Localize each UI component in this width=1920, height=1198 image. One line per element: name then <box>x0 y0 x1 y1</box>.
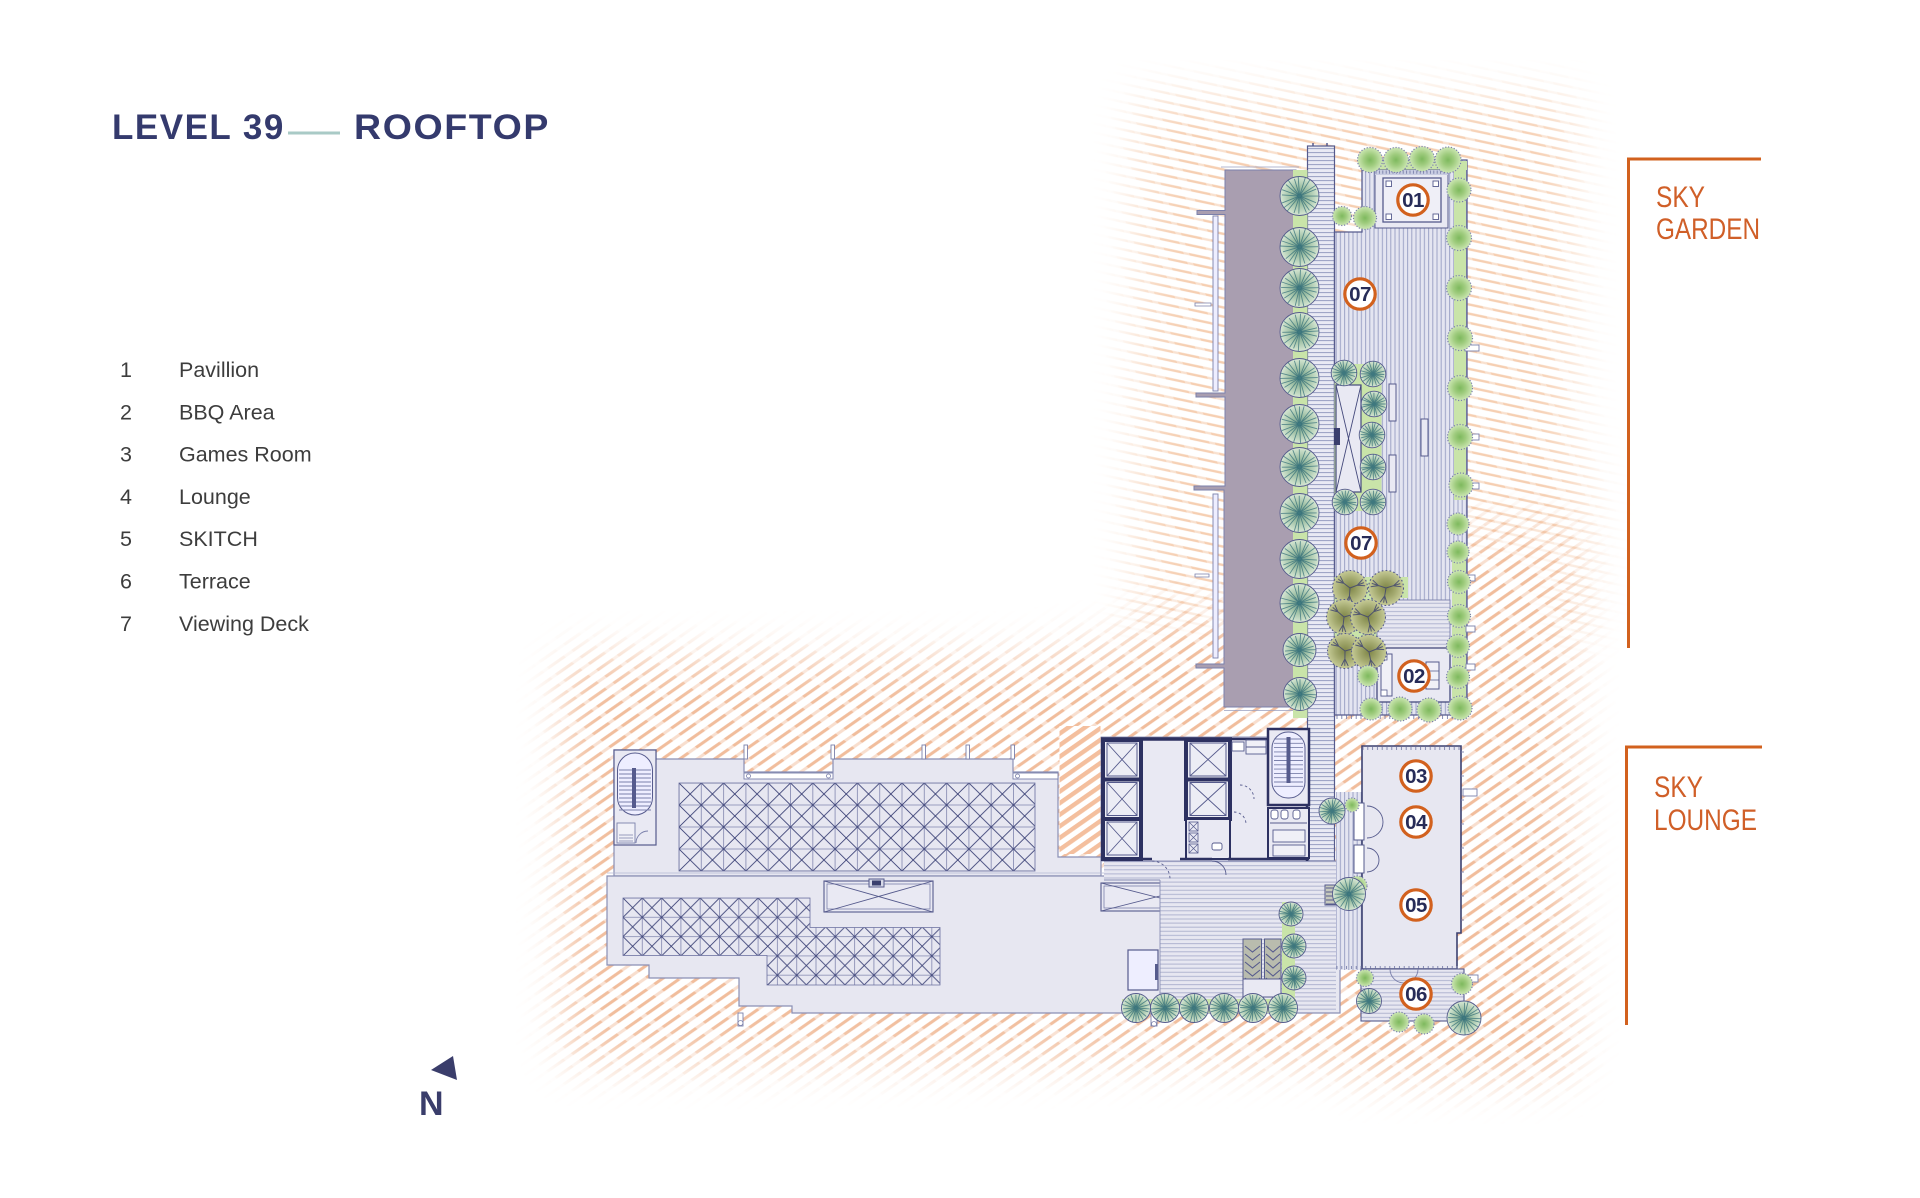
svg-text:Games Room: Games Room <box>179 443 312 467</box>
svg-text:03: 03 <box>1405 765 1427 788</box>
svg-text:07: 07 <box>1349 283 1371 306</box>
svg-text:Terrace: Terrace <box>179 570 251 594</box>
svg-text:Lounge: Lounge <box>179 485 251 509</box>
svg-text:5: 5 <box>120 527 132 551</box>
svg-text:N: N <box>419 1085 444 1123</box>
svg-text:BBQ Area: BBQ Area <box>179 400 275 424</box>
svg-text:ROOFTOP: ROOFTOP <box>354 108 550 147</box>
svg-text:04: 04 <box>1405 811 1428 834</box>
svg-text:02: 02 <box>1403 665 1425 688</box>
svg-text:3: 3 <box>120 443 132 467</box>
svg-text:07: 07 <box>1350 532 1372 555</box>
svg-text:7: 7 <box>120 612 132 636</box>
svg-text:Pavillion: Pavillion <box>179 358 259 382</box>
svg-text:6: 6 <box>120 570 132 594</box>
svg-text:05: 05 <box>1405 894 1427 917</box>
svg-text:4: 4 <box>120 485 132 509</box>
svg-text:SKY: SKY <box>1656 181 1705 214</box>
svg-text:SKITCH: SKITCH <box>179 527 258 551</box>
svg-text:GARDEN: GARDEN <box>1656 213 1760 246</box>
svg-text:LEVEL 39: LEVEL 39 <box>112 108 285 147</box>
svg-text:01: 01 <box>1402 189 1424 212</box>
svg-text:Viewing Deck: Viewing Deck <box>179 612 309 636</box>
svg-text:LOUNGE: LOUNGE <box>1654 804 1757 837</box>
svg-text:2: 2 <box>120 400 132 424</box>
svg-text:1: 1 <box>120 358 132 382</box>
svg-text:SKY: SKY <box>1654 771 1703 804</box>
svg-text:06: 06 <box>1405 983 1427 1006</box>
